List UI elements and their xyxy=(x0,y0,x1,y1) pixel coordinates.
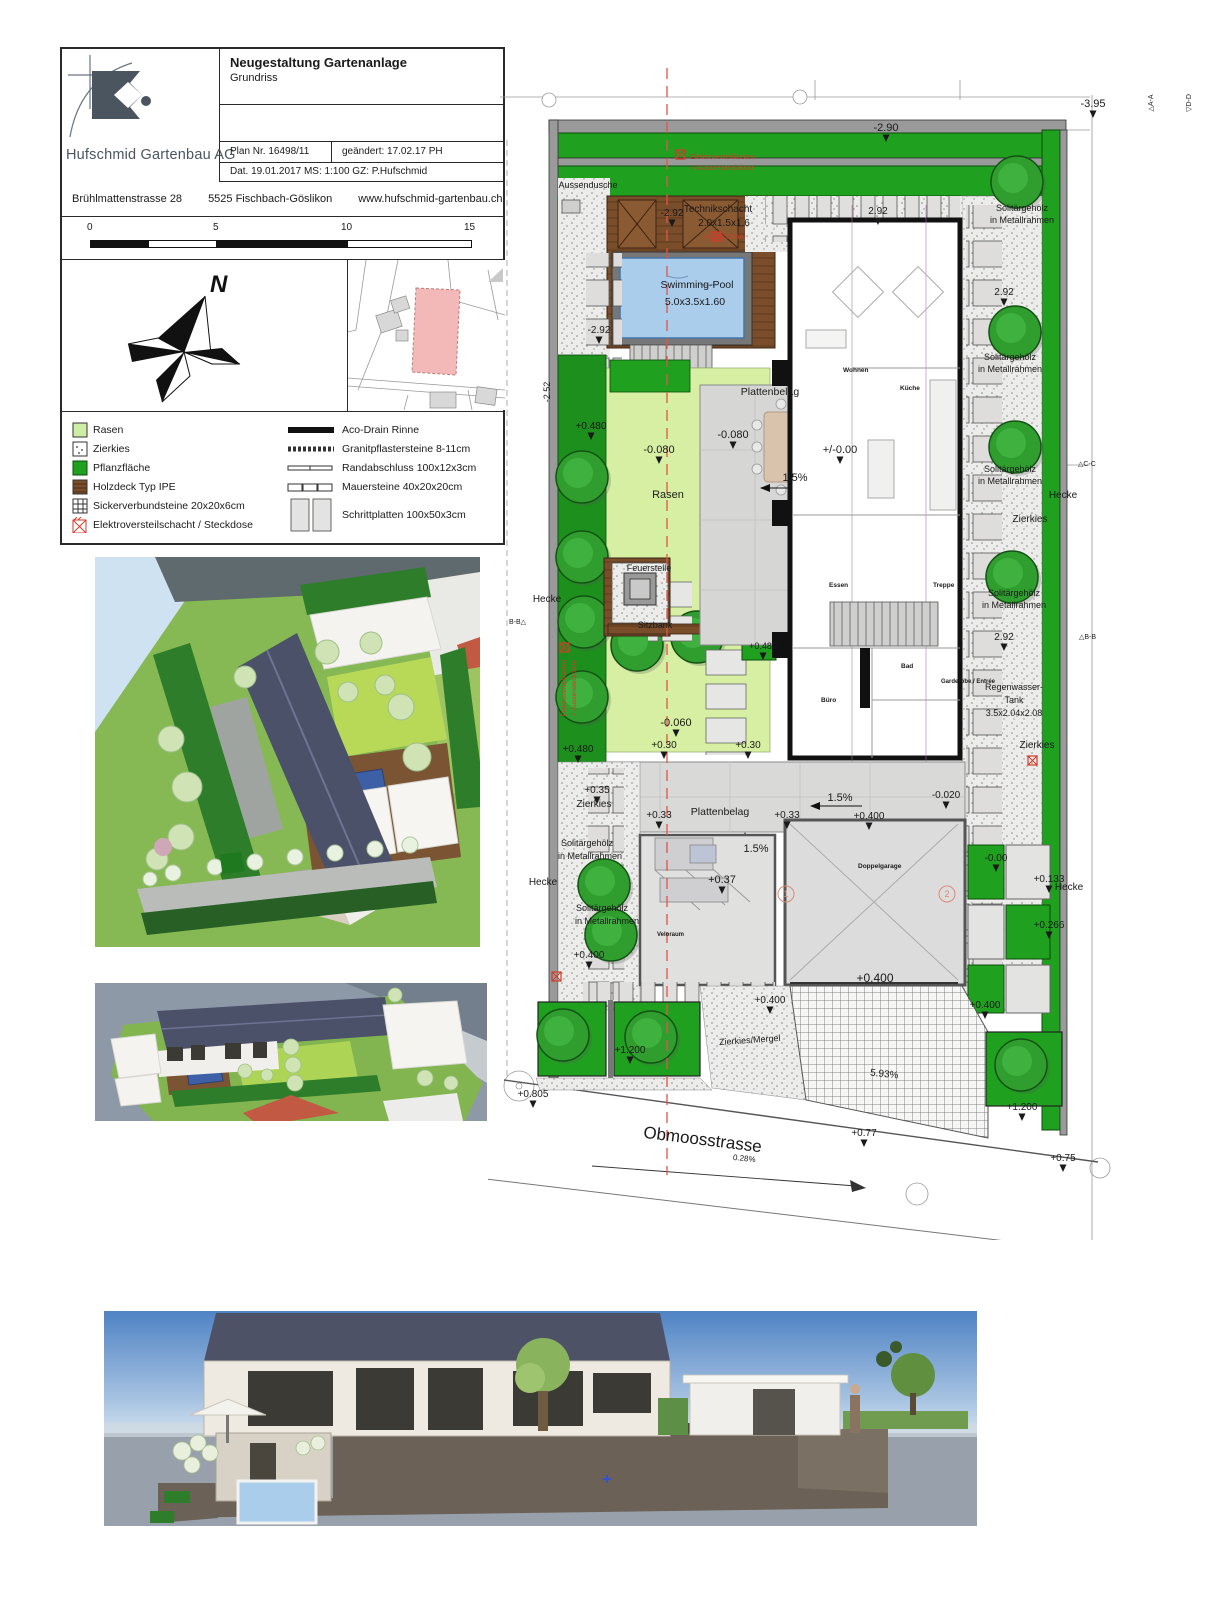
plan-label: Essen xyxy=(829,582,848,589)
elevation-arrow-icon xyxy=(530,1101,537,1109)
scale-tick-10: 10 xyxy=(341,222,352,233)
plan-label: Solitärgehölz xyxy=(984,352,1037,362)
plan-changed: geändert: 17.02.17 PH xyxy=(332,142,503,163)
plan-label: -2.52 xyxy=(542,382,552,403)
legend-label: Zierkies xyxy=(93,443,130,455)
plan-label: Solitärgehölz xyxy=(984,464,1037,474)
logo-icon xyxy=(62,49,218,145)
legend-item-rasen: Rasen xyxy=(72,420,253,439)
plan-label: +0.30 xyxy=(651,740,677,751)
plan-label: Büro xyxy=(821,697,836,704)
plan-label: 2.0x1.5x1.6 xyxy=(698,218,750,229)
plan-label: +0.400 xyxy=(755,995,786,1006)
veloraum-building xyxy=(640,835,775,985)
elevation-arrow-icon xyxy=(861,1140,868,1148)
garage xyxy=(778,820,965,985)
plan-label: Solitärgehölz xyxy=(576,903,629,913)
legend-swatch-elektro-icon xyxy=(72,517,88,533)
plan-label: -2.92 xyxy=(661,208,684,219)
legend-swatch-pflanzflaeche-icon xyxy=(72,460,88,476)
plan-label: -2.92 xyxy=(588,325,611,336)
plan-label: 2 xyxy=(944,889,949,899)
plan-label: Treppe xyxy=(933,582,955,589)
legend-right-column: Aco-Drain Rinne Granitpflastersteine 8-1… xyxy=(287,420,476,534)
legend-left-column: Rasen Zierkies Pflanzfläche Holzdeck Typ… xyxy=(72,420,253,534)
plan-label: Zierkies xyxy=(1019,740,1054,751)
scale-tick-15: 15 xyxy=(464,222,475,233)
legend-swatch-granit-icon xyxy=(287,441,337,457)
plan-label: Solitärgehölz xyxy=(988,588,1041,598)
plan-label: Plattenbelag xyxy=(691,806,750,818)
title-block: Hufschmid Gartenbau AG Neugestaltung Gar… xyxy=(60,47,505,545)
legend-item-holzdeck: Holzdeck Typ IPE xyxy=(72,477,253,496)
plan-label: Elektroverteilkasten xyxy=(561,659,568,716)
legend-swatch-schritt-icon xyxy=(287,497,337,533)
plan-label: 1.5% xyxy=(827,792,852,804)
svg-text:N: N xyxy=(210,271,228,298)
legend-label: Schrittplatten 100x50x3cm xyxy=(342,509,466,521)
legend-swatch-acodrain-icon xyxy=(287,422,337,438)
plan-label: +0.37 xyxy=(708,874,736,886)
render-elevation-section xyxy=(98,1283,985,1530)
plan-label: in Metallrahmen xyxy=(982,600,1046,610)
legend-label: Rasen xyxy=(93,424,123,436)
plan-label: +1.200 xyxy=(1007,1102,1038,1113)
legend-label: Aco-Drain Rinne xyxy=(342,424,419,436)
north-arrow: N xyxy=(62,260,342,408)
plan-label: +0.480 xyxy=(563,744,594,755)
plan-label: Aussendusche xyxy=(558,180,617,190)
plan-label: -0.00 xyxy=(985,853,1008,864)
legend-item-sickerverbundsteine: Sickerverbundsteine 20x20x6cm xyxy=(72,496,253,515)
legend-label: Elektroversteilschacht / Steckdose xyxy=(93,519,253,531)
plan-label: Sitzbank xyxy=(638,620,673,630)
legend-label: Sickerverbundsteine 20x20x6cm xyxy=(93,500,245,512)
plan-label: Zierkies xyxy=(1012,514,1047,525)
plan-label: Swimming-Pool xyxy=(661,279,734,291)
plan-label: +0.30 xyxy=(735,740,761,751)
plan-label: Tank xyxy=(1004,695,1024,705)
plan-label: Doppelgarage xyxy=(858,863,902,870)
plan-label: Technikschacht xyxy=(684,204,753,215)
plan-label: Hecke xyxy=(1055,882,1084,893)
elevation-arrow-icon xyxy=(1090,111,1097,119)
compass-map-row: N xyxy=(62,260,503,412)
company-logo: Hufschmid Gartenbau AG xyxy=(62,49,220,182)
plan-label: +0.805 xyxy=(518,1089,549,1100)
plan-label: B-B△ xyxy=(509,619,527,626)
elevation-arrow-icon xyxy=(745,752,752,760)
plan-label: in Metallrahmen xyxy=(558,851,622,861)
plan-label: Regenwasser- xyxy=(985,682,1043,692)
plan-label: 1.5% xyxy=(782,472,807,484)
plan-label: +0.77 xyxy=(851,1128,877,1139)
legend-item-mauersteine: Mauersteine 40x20x20cm xyxy=(287,477,476,496)
legend-item-zierkies: Zierkies xyxy=(72,439,253,458)
plan-label: +0.35 xyxy=(584,785,610,796)
empty-cell xyxy=(220,105,503,142)
plan-date-line: Dat. 19.01.2017 MS: 1:100 GZ: P.Hufschmi… xyxy=(220,163,503,182)
plan-label: △B-B xyxy=(1079,634,1096,641)
plan-label: Wohnen xyxy=(843,367,869,374)
company-name: Hufschmid Gartenbau AG xyxy=(66,147,236,163)
legend-label: Pflanzfläche xyxy=(93,462,150,474)
legend-item-schrittplatten: Schrittplatten 100x50x3cm xyxy=(287,496,476,534)
plan-label: in Metallrahmen xyxy=(990,215,1054,225)
plan-label: Rasen xyxy=(652,489,684,501)
plan-label: Hecke xyxy=(529,877,558,888)
legend: Rasen Zierkies Pflanzfläche Holzdeck Typ… xyxy=(62,412,503,543)
plan-label: +0.400 xyxy=(854,811,885,822)
plan-label: Solitärgehölz xyxy=(561,838,614,848)
scale-bar: 0 5 10 15 xyxy=(62,217,503,260)
plan-title-cell: Neugestaltung Gartenanlage Grundriss xyxy=(220,49,503,105)
legend-label: Granitpflastersteine 8-11cm xyxy=(342,443,470,455)
legend-item-acodrain: Aco-Drain Rinne xyxy=(287,420,476,439)
plan-label: 2.92 xyxy=(994,632,1014,643)
plan-label: +0.75 xyxy=(1050,1153,1076,1164)
elevation-arrow-icon xyxy=(1019,1114,1026,1122)
address-bar: Brühlmattenstrasse 28 5525 Fischbach-Gös… xyxy=(62,182,503,217)
plan-label: -0.080 xyxy=(643,444,674,456)
plan-label: 5.0x3.5x1.60 xyxy=(665,296,725,308)
plan-label: +/-0.00 xyxy=(823,444,858,456)
legend-item-granit: Granitpflastersteine 8-11cm xyxy=(287,439,476,458)
plan-label: in Metallrahmen xyxy=(978,364,1042,374)
plan-label: +0.400 xyxy=(856,971,893,985)
plan-label: △A-A xyxy=(1148,94,1155,111)
plan-label: Hecke xyxy=(1049,490,1078,501)
plan-label: Solitärgehölz xyxy=(996,203,1049,213)
address-web: www.hufschmid-gartenbau.ch xyxy=(358,193,502,205)
plan-label: Bad xyxy=(901,663,913,670)
legend-item-pflanzflaeche: Pflanzfläche xyxy=(72,458,253,477)
plan-label: 3.5x2.04x2.08 xyxy=(986,708,1043,718)
plan-label: +1.200 xyxy=(615,1045,646,1056)
plan-sheet: Hufschmid Gartenbau AG Neugestaltung Gar… xyxy=(0,0,1208,1600)
plan-label: △C-C xyxy=(1078,461,1096,468)
legend-item-randabschluss: Randabschluss 100x12x3cm xyxy=(287,458,476,477)
plan-label: Küche xyxy=(900,385,920,392)
legend-swatch-rand-icon xyxy=(287,460,337,476)
plan-label: 1 xyxy=(783,889,788,899)
legend-swatch-mauer-icon xyxy=(287,479,337,495)
plan-label: in Metallrahmen xyxy=(575,916,639,926)
scale-tick-5: 5 xyxy=(213,222,219,233)
legend-label: Mauersteine 40x20x20cm xyxy=(342,481,462,493)
legend-label: Holzdeck Typ IPE xyxy=(93,481,176,493)
plan-label: in Metallrahmen xyxy=(978,476,1042,486)
plan-label: 2.92 xyxy=(994,287,1014,298)
render-aerial-view-1 xyxy=(95,557,480,947)
site-plan: -3.95△A-A▽D-D-2.90Elektroverteilkasten+ … xyxy=(488,60,1208,1240)
plan-label: +0.480 xyxy=(576,421,607,432)
elevation-arrow-icon xyxy=(982,1012,989,1020)
legend-item-elektro: Elektroversteilschacht / Steckdose xyxy=(72,515,253,534)
plan-label: 0.28% xyxy=(733,1153,757,1164)
plan-title: Neugestaltung Gartenanlage xyxy=(230,55,503,70)
plan-label: Veloraum xyxy=(657,932,684,938)
plan-label: +0.33 xyxy=(646,810,672,821)
plan-label: +0.33 xyxy=(774,810,800,821)
legend-label: Randabschluss 100x12x3cm xyxy=(342,462,476,474)
plan-label: +0.400 xyxy=(574,950,605,961)
legend-swatch-holzdeck-icon xyxy=(72,479,88,495)
plan-label: Plattenbelag xyxy=(741,386,800,398)
plan-label: 2.92 xyxy=(868,206,888,217)
plan-label: + Aussensteckdose xyxy=(571,660,578,717)
plan-label: -3.95 xyxy=(1080,98,1105,110)
plan-label: 4 x 230/ 16A xyxy=(704,234,744,241)
legend-swatch-rasen-icon xyxy=(72,422,88,438)
plan-label: Obmoosstrasse xyxy=(642,1123,762,1156)
site-location-map xyxy=(348,260,505,410)
plan-label: -0.020 xyxy=(932,790,961,801)
plan-subtitle: Grundriss xyxy=(230,72,503,84)
plan-label: Elektroverteilkasten xyxy=(690,152,755,161)
address-city: 5525 Fischbach-Göslikon xyxy=(208,193,332,205)
legend-swatch-zierkies-icon xyxy=(72,441,88,457)
render-aerial-view-2 xyxy=(95,983,487,1121)
plan-label: Feuerstelle xyxy=(627,563,672,573)
legend-swatch-sicker-icon xyxy=(72,498,88,514)
plan-label: + Aussensteckdose xyxy=(690,163,755,172)
plan-label: +0.400 xyxy=(970,1000,1001,1011)
scale-tick-0: 0 xyxy=(87,222,93,233)
plan-label: Hecke xyxy=(533,594,562,605)
plan-label: ▽D-D xyxy=(1186,94,1193,112)
plan-label: -0.080 xyxy=(717,429,748,441)
elevation-arrow-icon xyxy=(1060,1165,1067,1173)
plan-label: -2.90 xyxy=(873,122,898,134)
plan-label: -0.060 xyxy=(660,717,691,729)
address-street: Brühlmattenstrasse 28 xyxy=(72,193,182,205)
plan-label: +0.266 xyxy=(1034,920,1065,931)
plan-label: Zierkies xyxy=(576,799,611,810)
plan-number: Plan Nr. 16498/11 xyxy=(220,142,332,163)
plan-label: 1.5% xyxy=(743,843,768,855)
plan-label: +0.480 xyxy=(749,641,777,651)
